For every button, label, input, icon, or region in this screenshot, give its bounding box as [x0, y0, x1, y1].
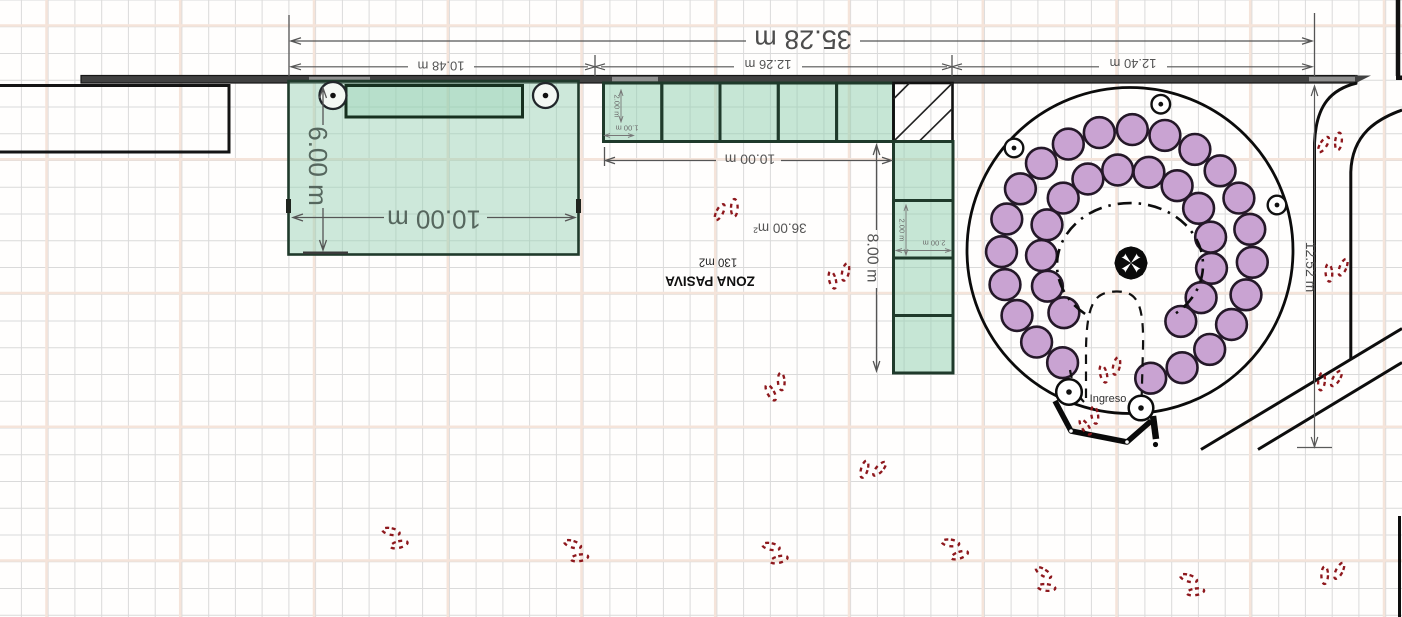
svg-text:12.52 m: 12.52 m	[1303, 242, 1319, 293]
svg-text:10.00 m: 10.00 m	[725, 152, 776, 168]
svg-text:2.00 m: 2.00 m	[898, 219, 907, 242]
svg-text:35.28 m: 35.28 m	[754, 25, 852, 55]
svg-text:12.40 m: 12.40 m	[1110, 56, 1157, 71]
svg-text:8.00 m: 8.00 m	[864, 234, 881, 283]
svg-text:10.48 m: 10.48 m	[418, 59, 465, 74]
svg-text:130 m2: 130 m2	[699, 256, 737, 268]
svg-text:Ingreso: Ingreso	[1090, 393, 1127, 405]
svg-text:ZONA PASIVA: ZONA PASIVA	[665, 274, 755, 289]
svg-text:10.00 m: 10.00 m	[387, 205, 481, 235]
svg-text:36.00 m²: 36.00 m²	[753, 221, 807, 236]
svg-text:1.00 m: 1.00 m	[616, 124, 639, 133]
svg-text:6.00 m: 6.00 m	[303, 126, 333, 206]
svg-text:2.00 m: 2.00 m	[613, 95, 622, 118]
svg-text:12.26 m: 12.26 m	[745, 57, 792, 72]
svg-text:2.00 m: 2.00 m	[923, 239, 946, 248]
